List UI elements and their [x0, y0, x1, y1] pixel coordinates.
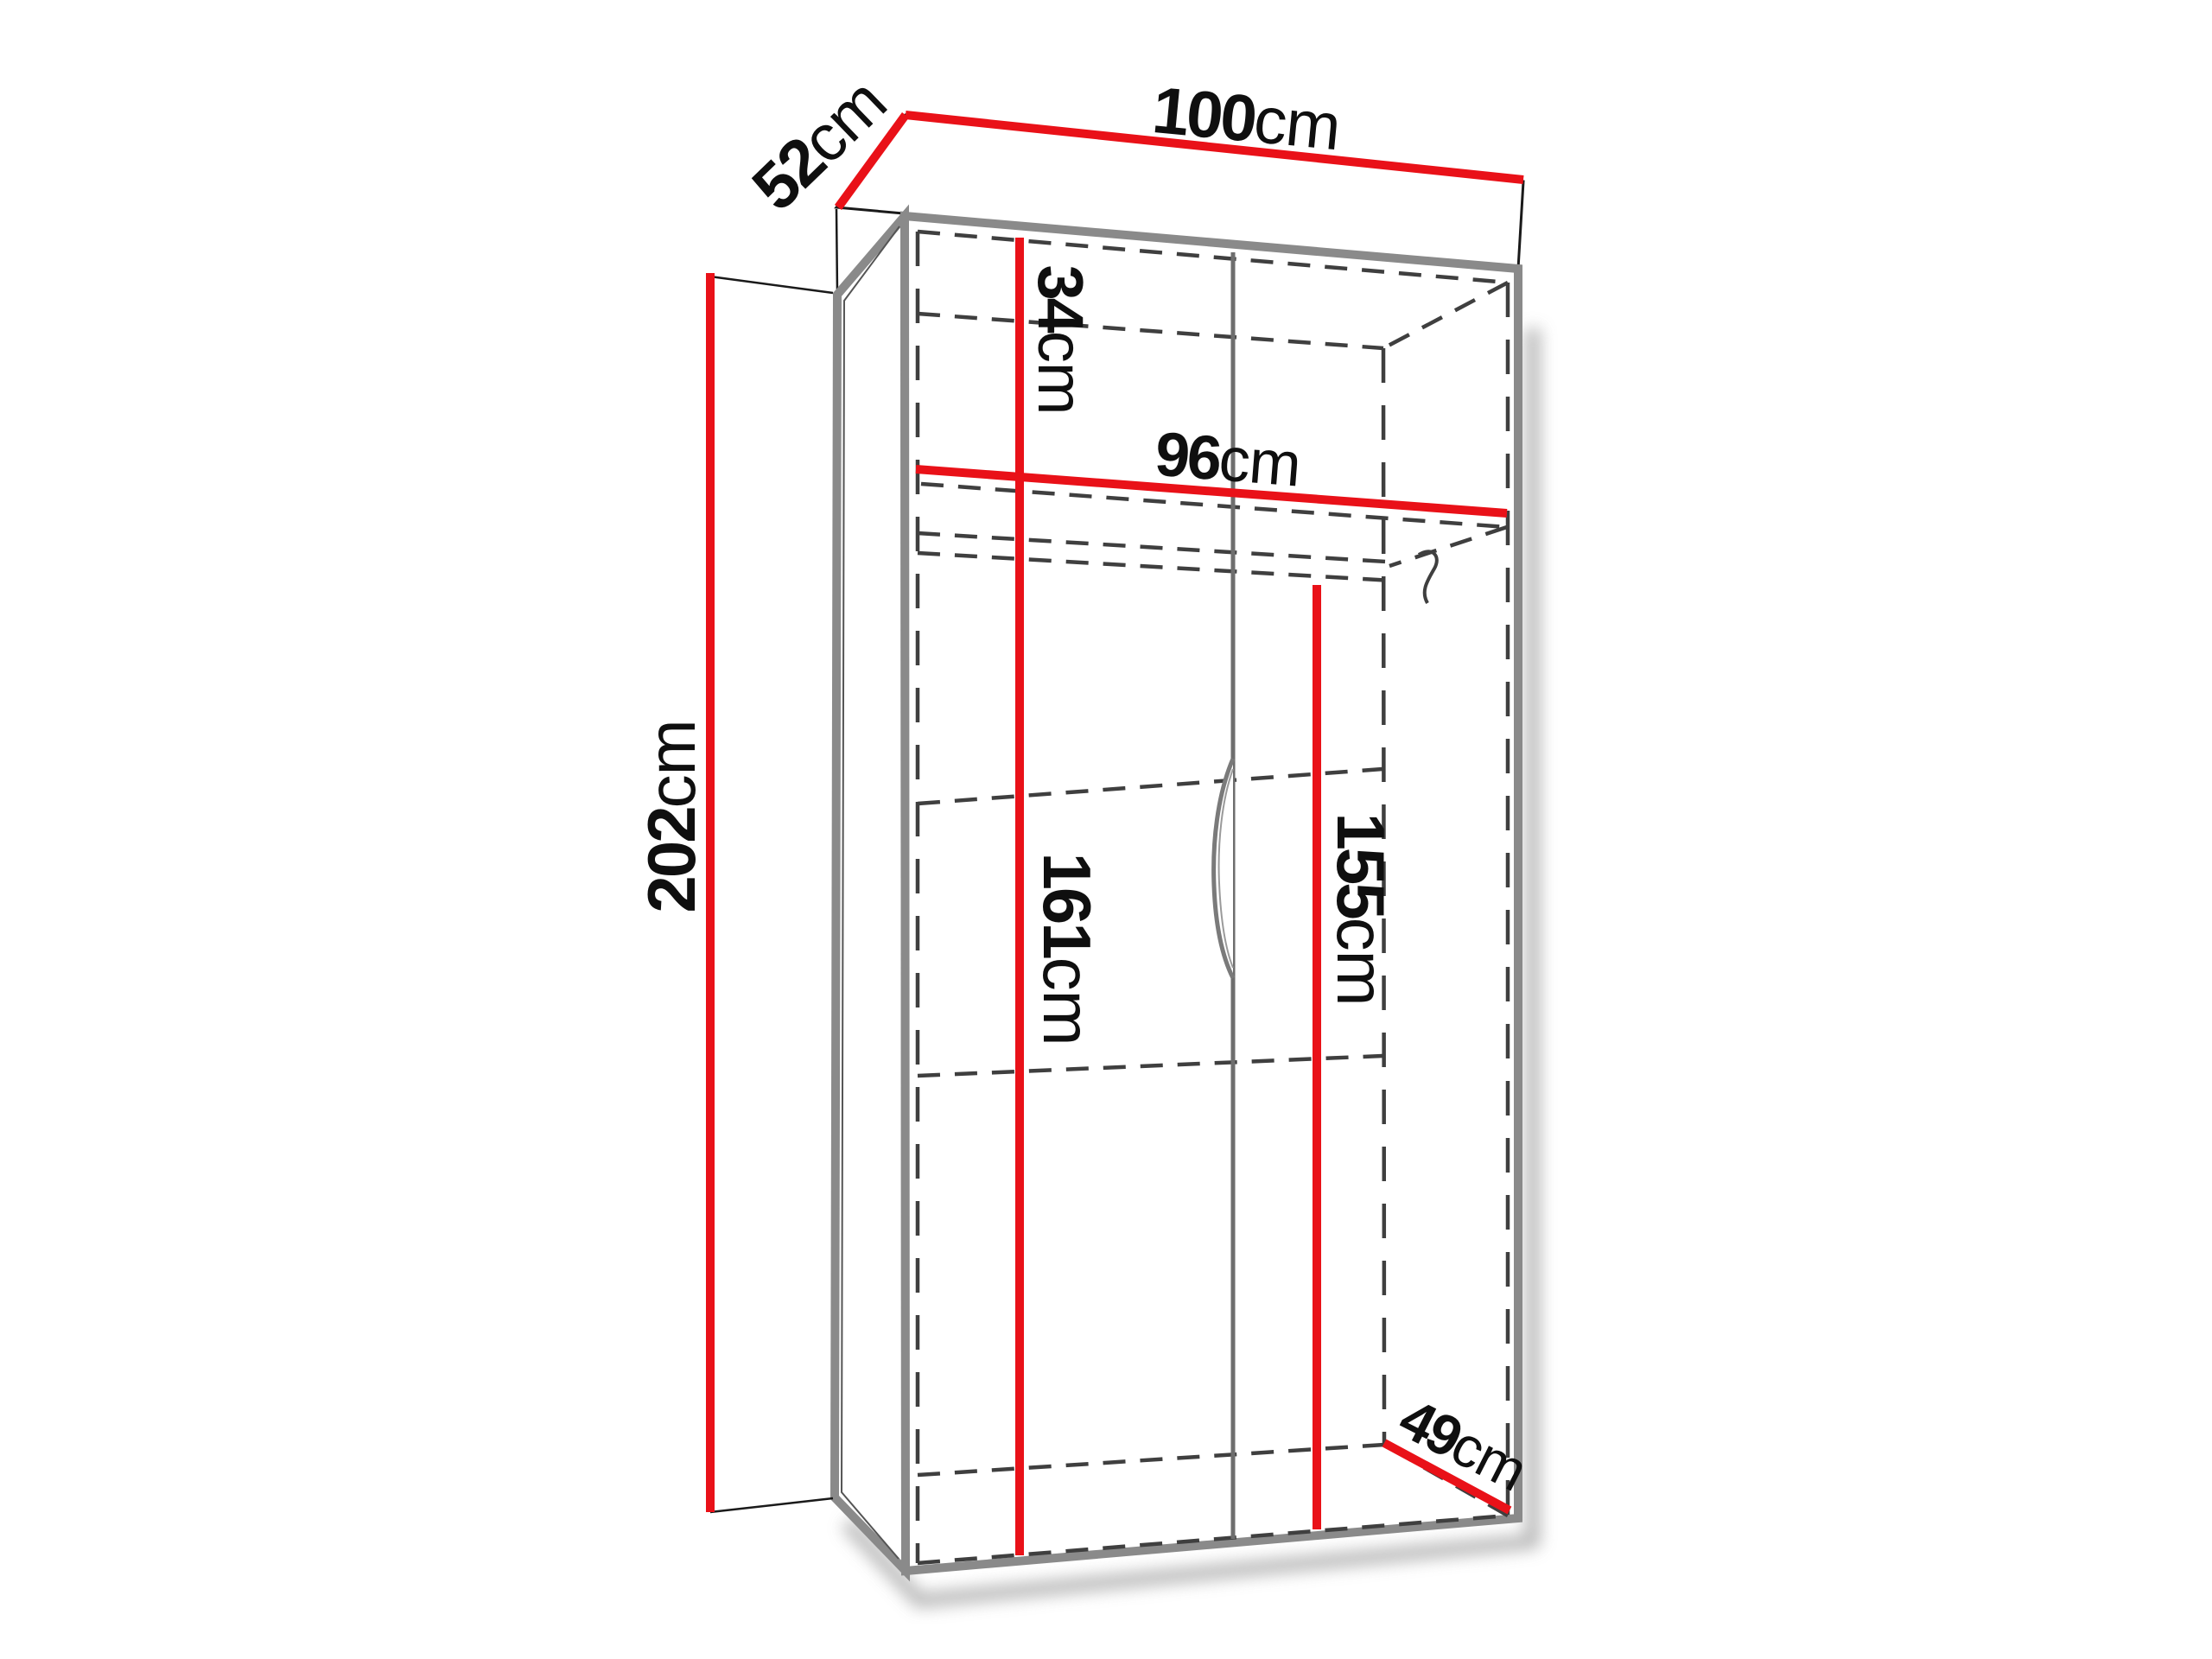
height-witness-top: [710, 276, 833, 293]
wardrobe-side-panel: [835, 216, 906, 1571]
dim-label-top-compartment: 34cm: [1025, 265, 1096, 415]
wardrobe-dimension-diagram: 100cm 52cm 202cm 34cm 96cm 161cm 155cm 4…: [0, 0, 2212, 1659]
height-witness-bottom: [710, 1498, 833, 1512]
dim-label-inner-height-left: 161cm: [1029, 852, 1105, 1045]
wardrobe-front-face: [905, 216, 1518, 1571]
dim-label-inner-height-right: 155cm: [1323, 812, 1399, 1005]
dim-label-height: 202cm: [633, 720, 709, 912]
dim-label-inner-width: 96cm: [1153, 420, 1303, 500]
lid-to-side-edge: [836, 209, 837, 293]
